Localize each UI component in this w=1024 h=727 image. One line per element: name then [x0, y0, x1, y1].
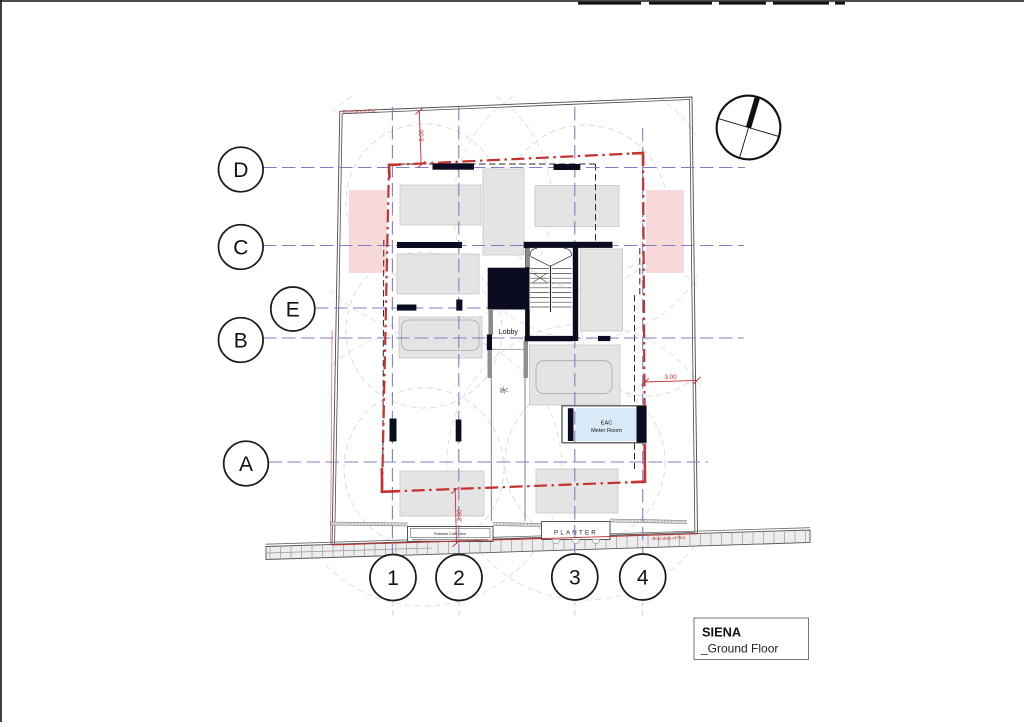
svg-text:A: A [239, 453, 253, 476]
svg-text:B: B [234, 330, 248, 353]
svg-text:3: 3 [569, 567, 581, 590]
svg-text:3.00: 3.00 [456, 509, 463, 522]
svg-text:E: E [286, 299, 300, 322]
svg-text:D: D [233, 159, 248, 182]
svg-text:Meter Room: Meter Room [591, 428, 622, 434]
svg-text:1: 1 [387, 567, 399, 590]
svg-text:Rubbish Collection: Rubbish Collection [434, 532, 466, 536]
svg-text:3.00: 3.00 [419, 129, 426, 142]
svg-text:SIENA: SIENA [702, 625, 741, 640]
svg-text:PLANTER: PLANTER [554, 530, 598, 537]
svg-text:C: C [233, 237, 248, 260]
svg-text:3.00: 3.00 [664, 374, 677, 381]
svg-text:_Ground Floor: _Ground Floor [700, 642, 778, 656]
svg-text:4: 4 [637, 567, 649, 590]
svg-text:EAC: EAC [601, 421, 613, 427]
svg-text:Boundary of Plot: Boundary of Plot [652, 535, 685, 541]
svg-text:2: 2 [453, 567, 465, 590]
svg-text:Lobby: Lobby [499, 329, 519, 336]
